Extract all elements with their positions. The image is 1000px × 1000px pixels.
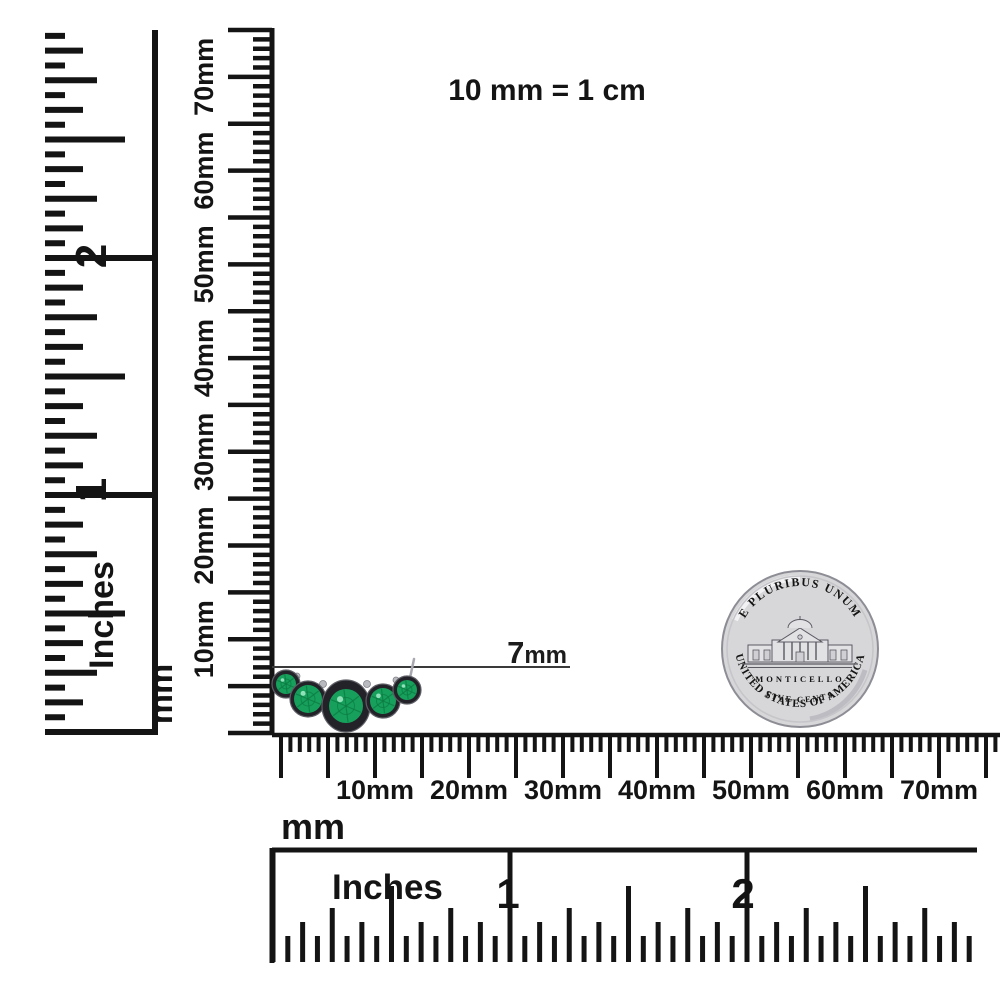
- left-mm-tick-label: 60mm: [189, 132, 219, 210]
- bottom-inch-number-2: 2: [731, 870, 754, 917]
- measurement-diagram: 10mm20mm30mm40mm50mm60mm70mm 10mm20mm30m…: [0, 0, 1000, 1000]
- left-mm-unit-label: mm: [142, 664, 180, 724]
- coin-building-name: MONTICELLO: [755, 674, 845, 684]
- bottom-mm-tick-label: 50mm: [712, 775, 790, 805]
- left-mm-tick-label: 40mm: [189, 319, 219, 397]
- nickel-coin: E PLURIBUS UNUM UNITED STATES OF AMERICA…: [722, 571, 878, 727]
- bottom-mm-tick-label: 60mm: [806, 775, 884, 805]
- bottom-inch-unit-label: Inches: [332, 868, 443, 907]
- bottom-mm-ruler: 10mm20mm30mm40mm50mm60mm70mm: [272, 735, 1000, 805]
- left-inch-unit-label: Inches: [83, 561, 121, 669]
- scale-note: 10 mm = 1 cm: [448, 74, 646, 107]
- silver-bead: [364, 681, 371, 688]
- left-inch-number-1: 1: [67, 478, 116, 502]
- size-annotation: 7mm: [272, 635, 570, 670]
- emerald-stone: [322, 680, 370, 732]
- bottom-mm-unit-label: mm: [281, 806, 345, 847]
- earring-post: [410, 659, 414, 678]
- emerald-stone: [393, 676, 421, 704]
- left-mm-tick-label: 70mm: [189, 38, 219, 116]
- bottom-mm-tick-label: 70mm: [900, 775, 978, 805]
- diagram-scene: 10mm20mm30mm40mm50mm60mm70mm 10mm20mm30m…: [0, 0, 1000, 1000]
- bottom-mm-tick-label: 10mm: [336, 775, 414, 805]
- bottom-mm-tick-label: 20mm: [430, 775, 508, 805]
- bottom-inch-number-1: 1: [496, 870, 519, 917]
- bottom-mm-tick-label: 40mm: [618, 775, 696, 805]
- left-mm-tick-label: 30mm: [189, 413, 219, 491]
- left-mm-tick-label: 20mm: [189, 507, 219, 585]
- size-label: 7mm: [507, 635, 567, 670]
- emerald-jewelry: [272, 659, 421, 732]
- bottom-mm-tick-label: 30mm: [524, 775, 602, 805]
- left-mm-tick-label: 50mm: [189, 225, 219, 303]
- emerald-stone: [290, 681, 326, 717]
- left-mm-ruler: 10mm20mm30mm40mm50mm60mm70mm: [189, 28, 272, 735]
- left-inch-number-2: 2: [67, 244, 116, 268]
- left-mm-tick-label: 10mm: [189, 600, 219, 678]
